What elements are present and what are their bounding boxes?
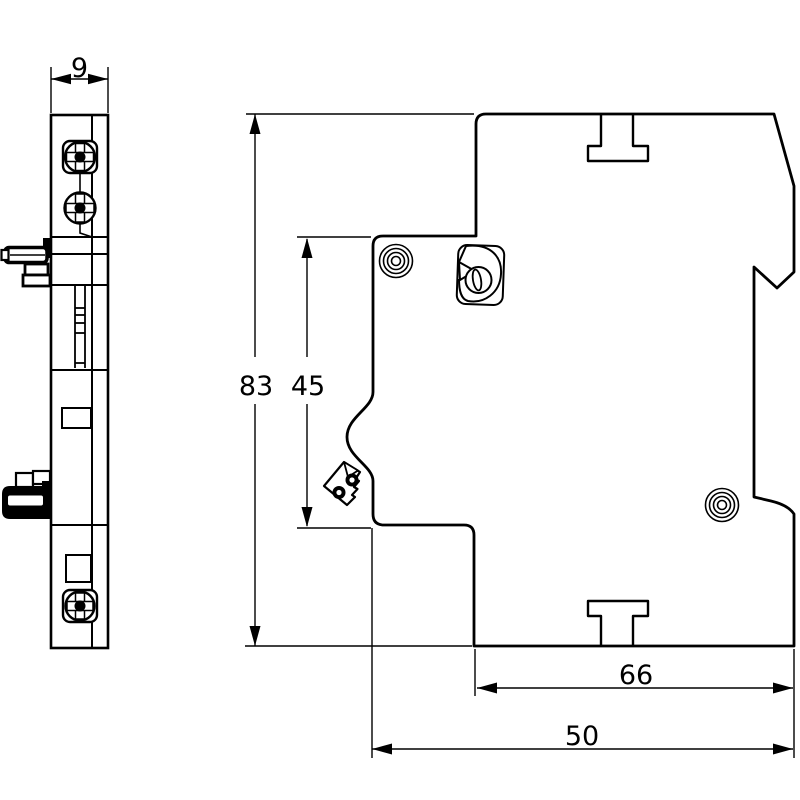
arrow-down: [302, 507, 313, 527]
terminal-screw-bottom: [63, 590, 97, 622]
selector-knob: [456, 245, 504, 306]
terminal-screw-top: [63, 141, 97, 173]
arrow-right: [773, 744, 793, 755]
arrow-left: [51, 74, 71, 84]
terminal-screw-middle: [65, 193, 96, 224]
side-view: [324, 114, 794, 646]
arrow-right: [88, 74, 108, 84]
window-lower: [66, 555, 91, 582]
dimension-upper-section-height-label: 45: [291, 371, 325, 402]
arrow-left: [477, 683, 497, 694]
dimension-depth-lower-label: 50: [565, 721, 599, 752]
side-body-outline: [347, 114, 794, 646]
plunger-bottom: [2, 471, 52, 519]
arrow-up: [250, 114, 261, 134]
arrow-left: [372, 744, 392, 755]
dimension-overall-height-label: 83: [239, 371, 273, 402]
dimension-depth-upper-label: 66: [619, 660, 653, 691]
arrow-right: [773, 683, 793, 694]
front-view: 9: [2, 53, 109, 648]
dimensional-drawing: 9: [0, 0, 800, 800]
toggle-lever: [324, 462, 360, 505]
plunger-top: [2, 238, 53, 286]
dimension-width-label: 9: [71, 53, 88, 84]
arrow-down: [250, 626, 261, 646]
window-upper: [62, 408, 91, 428]
arrow-up: [302, 238, 313, 258]
dimension-depth-upper: 66: [475, 649, 793, 696]
technical-drawing-page: 9: [0, 0, 800, 800]
dimension-width: 9: [51, 53, 108, 113]
